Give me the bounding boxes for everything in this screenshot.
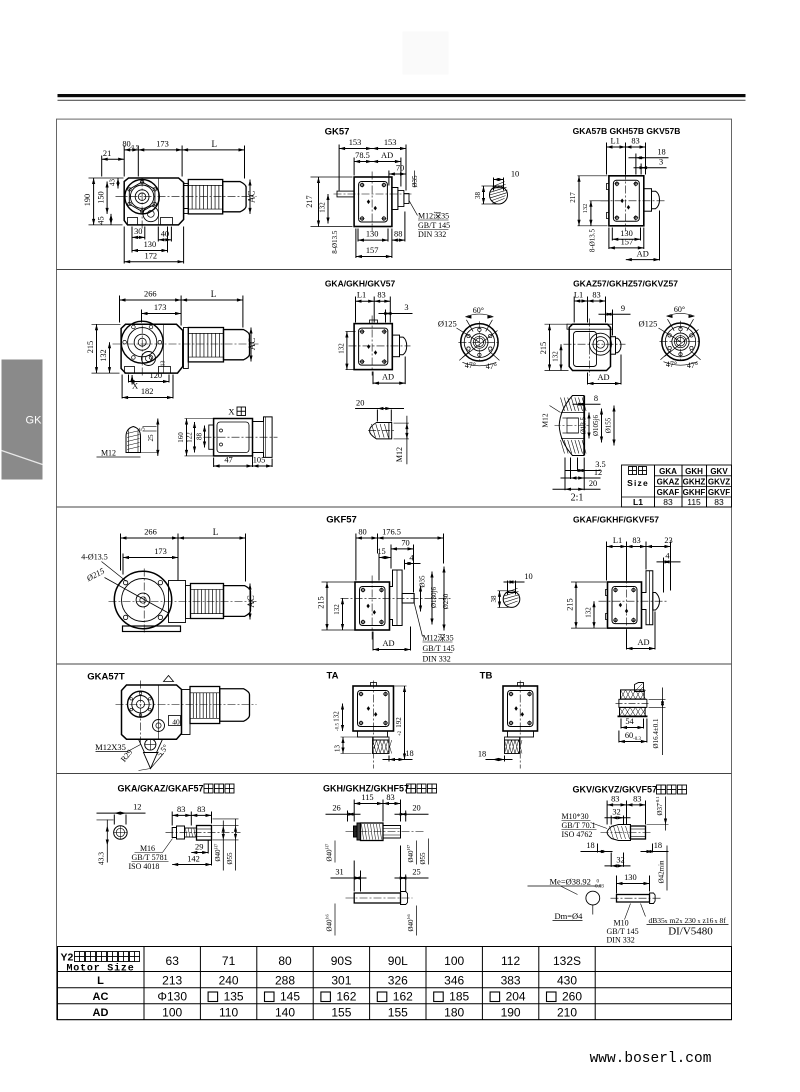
- svg-text:Ø35: Ø35: [411, 175, 419, 188]
- svg-text:60: 60: [625, 731, 633, 740]
- svg-text:150: 150: [97, 191, 106, 203]
- svg-text:Ø55: Ø55: [226, 852, 234, 865]
- svg-text:x: x: [698, 919, 701, 925]
- svg-text:Ø13.5: Ø13.5: [580, 416, 588, 434]
- svg-text:20: 20: [356, 399, 364, 408]
- svg-text:132: 132: [333, 604, 341, 615]
- svg-text:70: 70: [401, 539, 409, 548]
- svg-text:43.3: 43.3: [97, 852, 106, 865]
- svg-text:L: L: [211, 139, 217, 149]
- svg-text:GB/T 145: GB/T 145: [423, 644, 455, 653]
- svg-text:132: 132: [333, 711, 341, 722]
- svg-text:13: 13: [160, 361, 166, 367]
- svg-text:4-Ø13.5: 4-Ø13.5: [81, 553, 107, 562]
- svg-text:Ø16.4±0.1: Ø16.4±0.1: [652, 718, 660, 748]
- svg-text:217: 217: [305, 195, 314, 207]
- svg-text:83: 83: [386, 793, 394, 802]
- svg-text:Ø105j6: Ø105j6: [592, 415, 600, 437]
- svg-text:47°: 47°: [486, 362, 497, 371]
- svg-text:M12深35: M12深35: [423, 634, 454, 643]
- svg-text:83: 83: [631, 137, 639, 146]
- svg-text:266: 266: [144, 290, 157, 299]
- svg-text:GKAF/GKHF/GKVF57: GKAF/GKHF/GKVF57: [573, 515, 659, 525]
- svg-text:54: 54: [625, 717, 634, 726]
- svg-text:130: 130: [366, 230, 379, 239]
- svg-text:8-Ø13.5: 8-Ø13.5: [589, 228, 597, 252]
- svg-text:Motor Size: Motor Size: [66, 963, 134, 975]
- svg-text:-0.03: -0.03: [594, 885, 605, 890]
- svg-text:346: 346: [444, 974, 464, 988]
- svg-text:20: 20: [412, 804, 420, 813]
- svg-text:GB/T 145: GB/T 145: [418, 221, 450, 230]
- svg-text:25: 25: [147, 434, 155, 442]
- svg-text:GKHZ: GKHZ: [683, 478, 706, 487]
- svg-text:47: 47: [224, 456, 232, 465]
- svg-text:100: 100: [444, 954, 464, 968]
- svg-text:185: 185: [449, 990, 469, 1004]
- svg-text:132: 132: [338, 343, 346, 354]
- svg-text:70: 70: [396, 164, 404, 173]
- svg-text:Ø155: Ø155: [605, 417, 613, 433]
- svg-text:GKV/GKVZ/GKVF57: GKV/GKVZ/GKVF57: [573, 785, 658, 795]
- svg-text:GKF57: GKF57: [326, 515, 357, 526]
- svg-text:217: 217: [569, 192, 577, 203]
- svg-text:20: 20: [589, 479, 597, 488]
- svg-text:80: 80: [358, 528, 366, 537]
- svg-text:105: 105: [253, 456, 266, 465]
- svg-text:DIN 332: DIN 332: [423, 655, 451, 664]
- svg-text:71: 71: [222, 954, 236, 968]
- svg-text:L1: L1: [357, 291, 366, 300]
- svg-text:157: 157: [366, 246, 379, 255]
- svg-text:83: 83: [663, 497, 673, 507]
- svg-text:GKH: GKH: [685, 467, 703, 476]
- svg-text:h6: h6: [406, 914, 411, 919]
- svg-text:Ø250: Ø250: [442, 593, 450, 609]
- svg-text:H7: H7: [406, 844, 411, 850]
- svg-text:115: 115: [687, 497, 701, 507]
- svg-text:AD: AD: [93, 1007, 109, 1019]
- svg-text:230: 230: [685, 916, 697, 925]
- svg-text:18: 18: [405, 749, 413, 758]
- svg-text:47°: 47°: [465, 361, 476, 370]
- svg-text:115: 115: [361, 793, 373, 802]
- svg-text:h6: h6: [325, 914, 330, 919]
- svg-text:83: 83: [177, 805, 185, 814]
- svg-text:110: 110: [219, 1006, 238, 1020]
- svg-text:GKH/GKHZ/GKHF57: GKH/GKHZ/GKHF57: [323, 784, 409, 794]
- svg-text:173: 173: [156, 140, 169, 149]
- svg-text:120: 120: [150, 371, 163, 380]
- svg-text:190: 190: [83, 194, 92, 206]
- svg-text:GKA/GKAZ/GKAF57: GKA/GKAZ/GKAF57: [118, 784, 204, 794]
- svg-text:18: 18: [654, 841, 662, 850]
- svg-text:18: 18: [478, 750, 486, 759]
- svg-text:132: 132: [552, 351, 560, 362]
- svg-text:47°: 47°: [666, 360, 677, 369]
- svg-text:Ø35: Ø35: [418, 575, 426, 588]
- svg-text:Ø180j6: Ø180j6: [430, 587, 438, 609]
- svg-text:145: 145: [280, 990, 300, 1004]
- svg-text:83: 83: [377, 291, 385, 300]
- svg-text:DI/V5480: DI/V5480: [668, 926, 713, 938]
- svg-text:135: 135: [224, 990, 244, 1004]
- svg-text:M10*30: M10*30: [562, 812, 589, 821]
- svg-text:Dm=Ø4: Dm=Ø4: [555, 911, 584, 921]
- svg-text:GK57: GK57: [325, 127, 350, 138]
- svg-text:-0.5: -0.5: [336, 723, 341, 731]
- svg-text:326: 326: [388, 974, 408, 988]
- svg-text:Ø40: Ø40: [326, 849, 334, 862]
- svg-text:10: 10: [511, 170, 519, 179]
- svg-text:L: L: [213, 527, 219, 537]
- svg-text:TB: TB: [480, 671, 493, 682]
- svg-text:83: 83: [632, 536, 640, 545]
- svg-text:132: 132: [99, 349, 108, 361]
- svg-text:162: 162: [336, 990, 356, 1004]
- svg-text:29: 29: [195, 843, 203, 852]
- svg-text:18: 18: [586, 841, 594, 850]
- svg-text:X: X: [228, 407, 234, 417]
- svg-text:204: 204: [506, 990, 526, 1004]
- svg-text:3: 3: [404, 303, 408, 312]
- svg-text:288: 288: [275, 974, 295, 988]
- svg-text:GB/T 70.1: GB/T 70.1: [562, 821, 596, 830]
- svg-text:172: 172: [145, 251, 158, 260]
- svg-text:23: 23: [664, 536, 672, 545]
- svg-text:190: 190: [501, 1006, 521, 1020]
- svg-text:26: 26: [332, 804, 340, 813]
- svg-text:430: 430: [557, 974, 577, 988]
- svg-text:GKVZ: GKVZ: [708, 478, 730, 487]
- svg-text:DIN 332: DIN 332: [418, 230, 446, 239]
- svg-text:182: 182: [141, 387, 154, 396]
- svg-text:AC: AC: [247, 190, 257, 203]
- svg-text:Ø55: Ø55: [419, 852, 427, 865]
- svg-text:30: 30: [134, 227, 142, 236]
- svg-text:8f: 8f: [720, 916, 727, 925]
- svg-text:38: 38: [474, 192, 482, 200]
- svg-text:GKAZ: GKAZ: [657, 478, 680, 487]
- svg-text:10: 10: [524, 572, 532, 581]
- svg-text:157: 157: [621, 238, 634, 247]
- svg-text:83: 83: [611, 795, 619, 804]
- svg-text:AC: AC: [247, 338, 257, 351]
- svg-text:GKV: GKV: [710, 467, 728, 476]
- svg-text:40: 40: [172, 718, 180, 727]
- svg-text:DIN 332: DIN 332: [607, 936, 635, 945]
- svg-text:63: 63: [166, 954, 180, 968]
- svg-text:AD: AD: [381, 151, 393, 160]
- svg-text:78.5: 78.5: [355, 151, 370, 160]
- svg-text:88: 88: [196, 433, 204, 441]
- svg-text:Y2: Y2: [61, 952, 74, 964]
- svg-text:47°: 47°: [687, 361, 698, 370]
- svg-text:12: 12: [594, 468, 602, 477]
- svg-text:L1: L1: [611, 137, 620, 146]
- svg-text:83: 83: [633, 795, 641, 804]
- svg-text:9: 9: [621, 304, 625, 313]
- svg-text:L: L: [211, 289, 217, 299]
- svg-text:2:1: 2:1: [571, 493, 584, 504]
- svg-text:266: 266: [144, 528, 157, 537]
- svg-text:AD: AD: [382, 373, 394, 382]
- svg-text:155: 155: [331, 1006, 351, 1020]
- svg-text:240: 240: [219, 974, 239, 988]
- svg-text:Ø40: Ø40: [214, 849, 222, 862]
- svg-text:Ø125: Ø125: [438, 319, 457, 329]
- svg-text:M12X35: M12X35: [95, 742, 126, 752]
- svg-text:Ø40: Ø40: [407, 919, 415, 932]
- svg-text:L: L: [97, 975, 104, 987]
- svg-text:M12: M12: [395, 447, 404, 462]
- svg-text:31: 31: [335, 868, 343, 877]
- svg-text:25: 25: [412, 868, 420, 877]
- svg-text:x: x: [715, 919, 718, 925]
- svg-text:18: 18: [657, 148, 665, 157]
- svg-text:TA: TA: [327, 671, 339, 682]
- svg-text:AD: AD: [597, 373, 609, 382]
- svg-text:122: 122: [186, 432, 194, 443]
- svg-text:-0.5: -0.5: [130, 145, 139, 151]
- svg-text:H7: H7: [325, 843, 330, 849]
- svg-text:173: 173: [154, 547, 167, 556]
- svg-text:Ø42min: Ø42min: [658, 860, 666, 883]
- svg-text:AD: AD: [637, 250, 649, 259]
- svg-text:132S: 132S: [553, 954, 581, 968]
- svg-text:5: 5: [139, 427, 147, 431]
- svg-text:12: 12: [133, 803, 141, 812]
- svg-text:43: 43: [108, 179, 116, 187]
- svg-text:130: 130: [620, 229, 633, 238]
- svg-text:GKA/GKH/GKV57: GKA/GKH/GKV57: [325, 279, 396, 289]
- svg-text:132: 132: [582, 204, 589, 214]
- svg-text:8-Ø13.5: 8-Ø13.5: [331, 230, 339, 254]
- svg-text:3: 3: [659, 158, 663, 167]
- svg-text:383: 383: [501, 974, 521, 988]
- svg-text:83: 83: [714, 497, 724, 507]
- svg-text:M16: M16: [140, 844, 155, 853]
- svg-text:155: 155: [388, 1006, 408, 1020]
- svg-text:162: 162: [393, 990, 413, 1004]
- svg-text:210: 210: [557, 1006, 577, 1020]
- svg-text:260: 260: [562, 990, 582, 1004]
- svg-text:215: 215: [539, 342, 548, 354]
- svg-text:GK: GK: [26, 415, 43, 427]
- svg-text:+2: +2: [398, 730, 403, 736]
- svg-text:176.5: 176.5: [382, 528, 401, 537]
- svg-text:AD: AD: [637, 638, 649, 647]
- svg-text:215: 215: [317, 596, 326, 608]
- svg-text:M12深35: M12深35: [418, 212, 449, 221]
- svg-text:x: x: [680, 919, 683, 925]
- svg-text:213: 213: [162, 974, 182, 988]
- svg-text:60°: 60°: [674, 305, 685, 314]
- svg-text:M12: M12: [101, 449, 116, 458]
- svg-text:L1: L1: [613, 536, 622, 545]
- svg-text:112: 112: [501, 954, 520, 968]
- svg-text:153: 153: [349, 138, 362, 147]
- svg-text:Me=Ø38.92: Me=Ø38.92: [550, 877, 591, 887]
- svg-text:H7: H7: [213, 843, 218, 849]
- svg-text:88: 88: [394, 230, 402, 239]
- svg-text:83: 83: [197, 805, 205, 814]
- svg-text:Size: Size: [627, 478, 649, 488]
- svg-text:GKVF: GKVF: [708, 488, 730, 497]
- svg-text:z16: z16: [703, 916, 714, 925]
- svg-text:80: 80: [278, 954, 292, 968]
- svg-text:GKAF: GKAF: [657, 488, 680, 497]
- svg-text:L1: L1: [633, 497, 643, 507]
- svg-text:GB/T 5781: GB/T 5781: [132, 853, 168, 862]
- svg-text:130: 130: [624, 873, 637, 882]
- svg-text:dB35: dB35: [649, 916, 666, 925]
- svg-text:215: 215: [566, 598, 575, 610]
- svg-text:132: 132: [585, 607, 593, 618]
- svg-text:Ø40: Ø40: [326, 919, 334, 932]
- svg-text:142: 142: [187, 855, 200, 864]
- svg-text:173: 173: [154, 303, 167, 312]
- svg-text:AC: AC: [93, 991, 109, 1003]
- svg-text:m2: m2: [670, 916, 680, 925]
- svg-text:AC: AC: [246, 595, 256, 608]
- svg-text:GKA: GKA: [659, 467, 677, 476]
- svg-text:AD: AD: [382, 639, 394, 648]
- svg-text:ISO 4018: ISO 4018: [129, 862, 160, 871]
- svg-text:100: 100: [162, 1006, 182, 1020]
- svg-text:90L: 90L: [388, 954, 408, 968]
- svg-text:215: 215: [86, 341, 95, 353]
- svg-text:130: 130: [144, 240, 157, 249]
- svg-text:192: 192: [395, 717, 403, 728]
- svg-text:GKHF: GKHF: [683, 488, 706, 497]
- svg-text:60°: 60°: [473, 306, 484, 315]
- svg-text:38: 38: [490, 595, 498, 603]
- svg-text:8: 8: [594, 394, 598, 403]
- svg-text:301: 301: [331, 974, 351, 988]
- svg-text:13: 13: [334, 745, 342, 753]
- svg-text:Ø40: Ø40: [407, 850, 415, 863]
- svg-text:32: 32: [612, 808, 620, 817]
- svg-text:132: 132: [319, 202, 327, 213]
- svg-text:+0.1: +0.1: [655, 796, 660, 804]
- svg-text:45: 45: [97, 216, 106, 224]
- svg-text:83: 83: [592, 291, 600, 300]
- svg-text:x: x: [665, 919, 668, 925]
- svg-text:M12: M12: [541, 413, 550, 427]
- svg-text:ISO 4762: ISO 4762: [562, 830, 593, 839]
- svg-text:www.boserl.com: www.boserl.com: [590, 1051, 712, 1067]
- svg-text:GKA57B GKH57B GKV57B: GKA57B GKH57B GKV57B: [573, 126, 681, 136]
- svg-text:Ø125: Ø125: [639, 319, 658, 329]
- svg-text:160: 160: [177, 432, 185, 443]
- svg-text:Φ130: Φ130: [157, 990, 187, 1004]
- svg-text:-0.3: -0.3: [633, 737, 641, 742]
- svg-text:L1: L1: [574, 291, 583, 300]
- svg-text:GKAZ57/GKHZ57/GKVZ57: GKAZ57/GKHZ57/GKVZ57: [573, 279, 678, 289]
- svg-text:90S: 90S: [331, 954, 352, 968]
- svg-text:140: 140: [275, 1006, 295, 1020]
- svg-text:180: 180: [444, 1006, 464, 1020]
- svg-text:153: 153: [384, 138, 397, 147]
- svg-text:21: 21: [103, 149, 111, 158]
- svg-text:GKA57T: GKA57T: [87, 672, 125, 683]
